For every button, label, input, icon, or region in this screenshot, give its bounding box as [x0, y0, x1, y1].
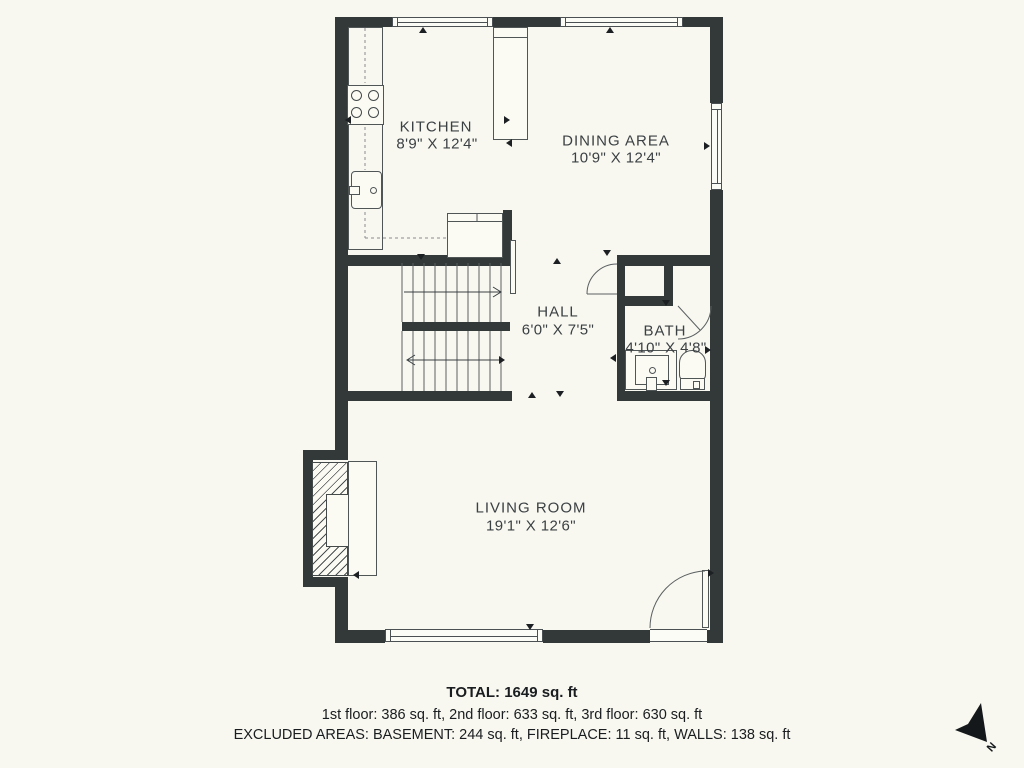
fireplace-hearth	[348, 461, 377, 576]
stove	[347, 85, 384, 125]
bath-wall	[617, 255, 625, 401]
window-frame	[392, 17, 398, 27]
dining-dims: 10'9" X 12'4"	[571, 150, 661, 167]
window	[385, 629, 543, 642]
door-leaf	[510, 240, 516, 294]
toilet-tank	[680, 378, 705, 390]
kitchen-dims: 8'9" X 12'4"	[396, 136, 477, 153]
floor-plan: N KITCHEN 8'9" X 12'4" DINING AREA 10'9"…	[0, 0, 1024, 768]
kitchen-counter	[348, 27, 383, 250]
stove-burner	[368, 107, 379, 118]
stairs-lower-flight	[402, 331, 501, 391]
wall	[493, 17, 560, 27]
window-frame	[677, 17, 683, 27]
partition-line	[494, 37, 527, 38]
window-frame	[711, 183, 722, 190]
vanity-faucet	[646, 377, 657, 391]
window	[560, 17, 683, 27]
wall	[617, 255, 723, 266]
window-frame	[487, 17, 493, 27]
wall	[543, 630, 650, 643]
sink-faucet	[349, 186, 360, 195]
window-frame	[537, 629, 543, 642]
kitchen-dining-partition	[493, 27, 528, 140]
wall	[617, 391, 723, 401]
total-area-text: TOTAL: 1649 sq. ft	[0, 684, 1024, 701]
window-pane-line	[393, 22, 492, 23]
bath-dims: 4'10" X 4'8"	[625, 340, 706, 357]
living-room-label: LIVING ROOM	[475, 500, 586, 517]
kitchen-sink	[351, 171, 382, 209]
stairs-up-arrow	[404, 287, 501, 297]
stairs-upper-flight	[402, 263, 501, 322]
kitchen-peninsula-counter	[447, 213, 503, 258]
excluded-areas-text: EXCLUDED AREAS: BASEMENT: 244 sq. ft, FI…	[0, 727, 1024, 743]
toilet-flush-button	[693, 381, 700, 389]
entry-door-arc	[650, 571, 705, 628]
window-pane-line	[717, 104, 718, 189]
kitchen-label: KITCHEN	[400, 119, 473, 136]
floor-areas-text: 1st floor: 386 sq. ft, 2nd floor: 633 sq…	[0, 707, 1024, 723]
stove-burner	[351, 90, 362, 101]
window-frame	[711, 103, 722, 110]
window-frame	[560, 17, 566, 27]
stair-divider-wall	[402, 322, 510, 331]
stove-burner	[368, 90, 379, 101]
entry-door-leaf	[702, 570, 709, 628]
stove-burner	[351, 107, 362, 118]
counter-edge-line	[448, 221, 502, 222]
window	[392, 17, 493, 27]
hall-label: HALL	[537, 304, 579, 321]
window-frame	[385, 629, 391, 642]
wall	[348, 391, 512, 401]
wall	[707, 630, 723, 643]
wall	[335, 17, 348, 459]
window	[711, 103, 722, 190]
sink-drain	[370, 187, 377, 194]
alcove-wall	[303, 577, 348, 587]
bath-label: BATH	[644, 323, 687, 340]
entry-door-opening	[650, 629, 707, 642]
dining-label: DINING AREA	[562, 133, 670, 150]
wall	[335, 630, 385, 643]
wall	[617, 296, 673, 306]
window-pane-line	[561, 22, 682, 23]
wall	[710, 17, 723, 103]
living-room-dims: 19'1" X 12'6"	[486, 518, 576, 535]
window-pane-line	[386, 636, 542, 637]
hall-dims: 6'0" X 7'5"	[522, 322, 595, 339]
closet-door-arc	[587, 264, 617, 294]
stairs-down-arrow	[407, 355, 505, 365]
basin-drain	[649, 367, 656, 374]
